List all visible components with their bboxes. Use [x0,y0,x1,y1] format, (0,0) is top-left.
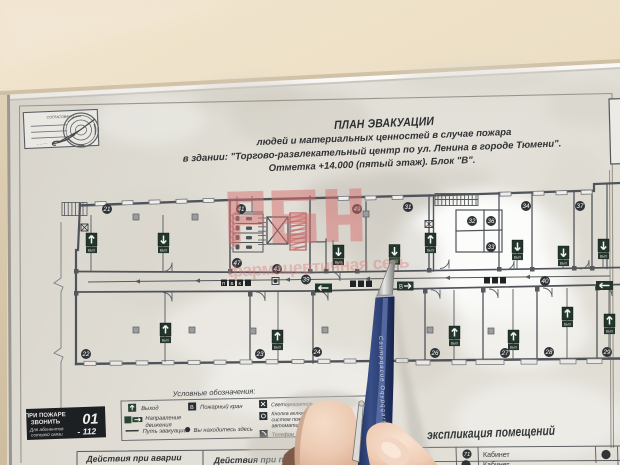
svg-text:ВЫХ: ВЫХ [162,338,170,342]
svg-text:Путь эвакуации: Путь эвакуации [143,428,188,435]
svg-text:- 112: - 112 [77,426,96,437]
svg-text:31: 31 [405,204,412,211]
svg-text:ВЫХ: ВЫХ [451,341,459,345]
svg-text:21: 21 [103,206,111,213]
svg-text:33: 33 [488,244,495,251]
svg-text:29: 29 [603,349,611,356]
svg-text:ВЫХ: ВЫХ [88,248,96,252]
svg-text:B: B [190,405,194,411]
svg-text:22: 22 [82,351,90,358]
svg-text:ВЫХ: ВЫХ [606,329,614,333]
svg-text:34: 34 [523,203,530,210]
svg-text:К: К [239,281,242,286]
svg-text:37: 37 [577,203,584,210]
svg-text:Вы находитесь здесь: Вы находитесь здесь [194,427,253,434]
svg-text:Кабинет: Кабинет [483,461,510,465]
svg-text:27: 27 [501,350,509,357]
svg-text:23: 23 [256,351,264,358]
svg-text:Направление: Направление [145,415,182,422]
svg-text:ВЫХ: ВЫХ [274,345,282,349]
svg-text:ВЫХ: ВЫХ [560,261,568,265]
svg-text:ВЫХ: ВЫХ [514,255,522,259]
svg-text:39: 39 [303,277,310,284]
svg-text:40: 40 [542,278,549,285]
svg-text:ВЫХ: ВЫХ [564,322,572,326]
svg-text:ВЫХ: ВЫХ [427,248,435,252]
svg-text:B: B [231,281,234,286]
svg-text:В: В [399,285,403,291]
svg-text:Пожарный кран: Пожарный кран [200,403,243,411]
svg-text:Выход: Выход [141,406,159,412]
svg-text:32: 32 [469,218,476,225]
svg-text:сотовой связи: сотовой связи [31,431,63,438]
svg-text:ВЫХ: ВЫХ [600,254,608,258]
svg-text:ЗВОНИТЬ: ЗВОНИТЬ [31,419,61,426]
svg-text:Кабинет: Кабинет [483,451,510,459]
svg-text:П: П [222,281,225,286]
svg-text:ВЫХ: ВЫХ [160,248,168,252]
svg-text:36: 36 [488,218,495,225]
svg-text:Действия при аварии: Действия при аварии [85,452,182,464]
svg-text:24: 24 [313,349,321,356]
svg-text:-- ... ----: -- ... ---- [37,142,48,146]
svg-text:ВЫХ: ВЫХ [510,345,518,349]
svg-text:26: 26 [431,350,439,357]
svg-text:71: 71 [464,452,470,458]
svg-text:28: 28 [545,349,553,356]
